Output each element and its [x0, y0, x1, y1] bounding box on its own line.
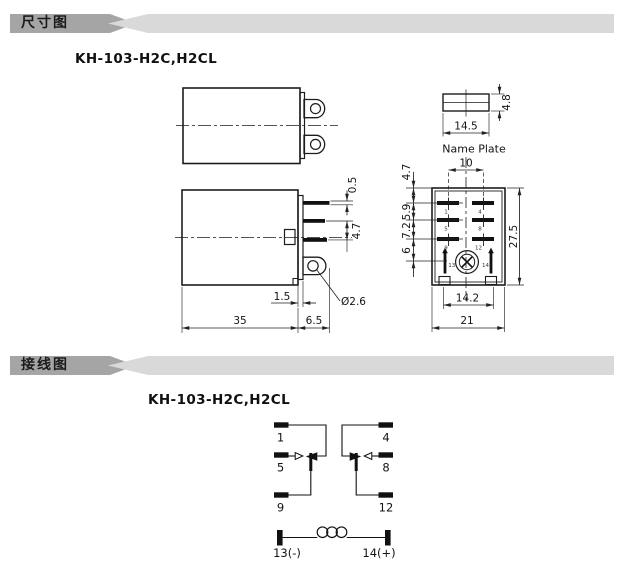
coil-cross — [462, 257, 473, 268]
terminal-label-5: 5 — [277, 461, 284, 475]
terminal-tab-upper — [304, 100, 325, 118]
mount-slot-right — [486, 277, 497, 285]
relay-datasheet-page: 尺寸图 KH-103-H2C,H2CL 接线图 KH-103-H2C,H2CL — [0, 0, 622, 566]
terminal-hole-lower — [311, 139, 321, 149]
nameplate-dimensions: 4.8 14.5 Name Plate — [442, 84, 513, 156]
terminal-tab-lower — [304, 135, 325, 153]
coil-winding — [317, 527, 347, 538]
movable-contacts — [306, 452, 361, 471]
terminal-label-4: 4 — [382, 431, 389, 445]
pin-number: 13 — [448, 263, 455, 269]
wire-terminal-12 — [356, 471, 378, 495]
dim-row-pitch-2: 7.2 — [401, 222, 413, 239]
dim-nameplate-width: 14.5 — [454, 121, 477, 133]
terminal-hole-upper — [311, 104, 321, 114]
dim-pin-thickness: 0.5 — [347, 177, 359, 194]
fixed-contact-arrows — [295, 453, 372, 460]
bottom-blade-pins — [437, 201, 494, 241]
terminal-label-13-minus: 13(-) — [273, 546, 301, 560]
wiring-diagram — [274, 422, 393, 545]
pin-number: 14 — [482, 263, 489, 269]
dim-row-offset: 4.7 — [401, 164, 413, 181]
dim-nameplate-thickness: 4.8 — [501, 94, 513, 111]
side-pins — [303, 201, 330, 242]
terminal-label-12: 12 — [379, 501, 394, 515]
pin-number: 9 — [444, 246, 448, 252]
pin-number: 4 — [478, 210, 482, 216]
terminal-label-9: 9 — [277, 501, 284, 515]
terminal-label-8: 8 — [382, 461, 389, 475]
terminal-label-14-plus: 14(+) — [362, 546, 395, 560]
dim-pin-length: 6.5 — [306, 315, 323, 327]
mount-slot-left — [439, 277, 450, 285]
dim-pin-span: 10 — [459, 158, 472, 170]
nameplate-view — [443, 90, 489, 117]
pin-number: 8 — [478, 227, 482, 233]
dim-pin-pitch: 4.7 — [351, 223, 363, 240]
mount-tab — [303, 257, 326, 274]
dim-body-length: 35 — [233, 315, 246, 327]
wire-terminal-4 — [342, 425, 379, 456]
relay-front-view — [176, 88, 338, 164]
terminal-label-1: 1 — [277, 431, 284, 445]
pin-number: 1 — [444, 210, 448, 216]
hole-leader-line — [317, 270, 341, 302]
side-latch-detail — [285, 230, 296, 245]
side-view-dimensions: 0.5 4.7 1.5 35 6.5 Ø2.6 — [182, 177, 366, 333]
dim-height: 27.5 — [508, 225, 520, 248]
wire-terminal-1 — [289, 425, 327, 456]
relay-side-view — [175, 190, 352, 285]
dim-hole-diameter: Ø2.6 — [341, 296, 366, 308]
technical-drawing-canvas: 0.5 4.7 1.5 35 6.5 Ø2.6 4.8 14.5 Name Pl… — [0, 0, 622, 566]
wire-terminal-9 — [289, 471, 311, 495]
dim-row-pitch-3: 6 — [401, 247, 413, 254]
dim-row-pitch-1: 5.9 — [401, 204, 413, 221]
dim-width: 21 — [460, 315, 473, 327]
relay-bottom-view — [432, 157, 505, 301]
pin-number: 12 — [475, 246, 482, 252]
pin-number: 5 — [444, 227, 448, 233]
nameplate-caption: Name Plate — [442, 143, 506, 156]
dim-step: 1.5 — [274, 291, 291, 303]
dim-inner-width: 14.2 — [456, 293, 479, 305]
